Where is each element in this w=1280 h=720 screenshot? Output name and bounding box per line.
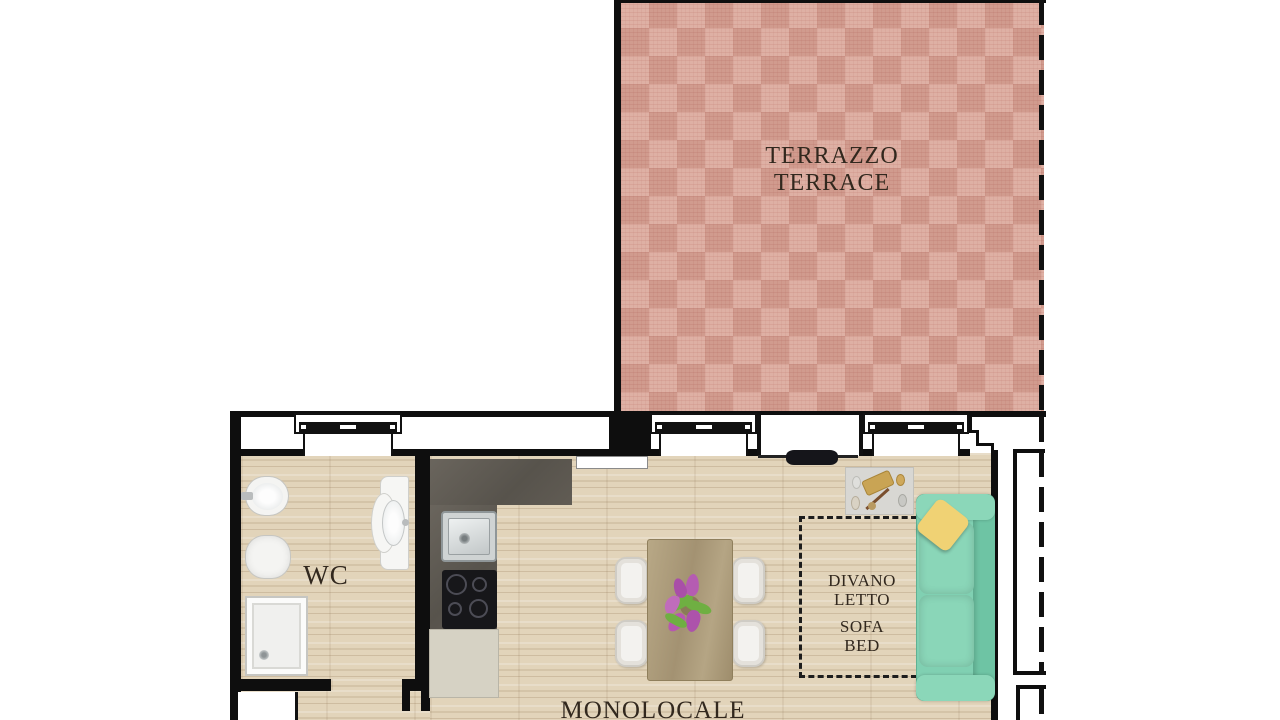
wall-ledge [576,456,648,469]
shoe [898,494,907,507]
kitchen-sink [441,511,497,562]
terrace-top-wall [617,0,1046,3]
living-window-1 [650,411,757,456]
dining-chair [732,620,765,667]
burner-icon [472,577,487,592]
terrace-right-dashed-edge [1039,0,1044,415]
burner-icon [469,599,488,618]
window-recess [872,434,960,456]
door-jamb-stub-left [402,691,410,711]
dining-chair [732,557,765,604]
lower-shaft-left-edge [1016,685,1020,720]
vanity-faucet [402,519,409,526]
window-glass-bar [868,422,964,432]
window-frame [650,413,757,434]
sofa-backrest [973,496,995,699]
sofa-bed-label-it-2: LETTO [802,590,922,609]
sofa-bed-label: DIVANO LETTO SOFA BED [802,571,922,655]
gold-bag [861,470,895,497]
terrace-label: TERRAZZO TERRACE [692,143,972,197]
lower-shaft-dashed-edge [1039,689,1044,720]
wc-outer-left-wall-lower [230,690,238,720]
floor-plan-canvas: TERRAZZO TERRACE [0,0,1280,720]
sofa-bed-label-en-1: SOFA [802,617,922,636]
shower-tray [245,596,308,676]
flower-centerpiece [660,572,720,638]
terrace-left-wall [614,0,621,413]
wc-kitchen-divider-wall [415,449,430,691]
window-recess [659,434,748,456]
accessory-dot [868,502,876,510]
bidet-bowl [252,483,283,510]
dining-chair [615,557,648,604]
sofa-cushion [919,595,974,667]
doormat-accessories [845,467,914,515]
wall-pier [609,413,651,456]
burner-icon [446,574,467,595]
burner-icon [448,602,462,616]
shaft-left-edge [1013,449,1017,675]
sofa-bed-label-it-1: DIVANO [802,571,922,590]
cooktop [442,570,497,629]
window-glass-bar [655,422,752,432]
dining-chair [615,620,648,667]
bidet-faucet [241,492,253,500]
window-recess [303,434,393,456]
sink-drain [459,533,470,544]
wc-bottom-wall [230,679,331,691]
wc-outer-left-wall [230,411,241,692]
window-glass-bar [299,422,397,432]
wall-mounted-tv [786,450,838,465]
wc-window [294,411,402,456]
shoe [852,476,861,489]
wc-label: WC [281,560,371,591]
sofa-bed-label-en-2: BED [802,636,922,655]
sofa-armrest [916,675,995,701]
sofa-bed [916,494,995,701]
terrace-label-en: TERRACE [692,170,972,197]
terrace-label-it: TERRAZZO [692,143,972,170]
shower-drain [259,650,269,660]
living-window-2 [863,411,969,456]
wall-step-5 [991,443,994,455]
shaft-dashed-edge [1039,417,1044,675]
kitchen-cabinet [429,629,499,698]
window-frame [294,413,402,434]
vanity-sink [371,476,409,570]
shoe [896,474,905,486]
kitchen-counter-top [430,459,572,505]
shoe [851,496,860,510]
studio-label: MONOLOCALE [503,697,803,720]
terrace-floor [621,0,1044,413]
entry-door-recess [238,692,298,720]
bidet [245,476,289,516]
window-frame [863,413,969,434]
